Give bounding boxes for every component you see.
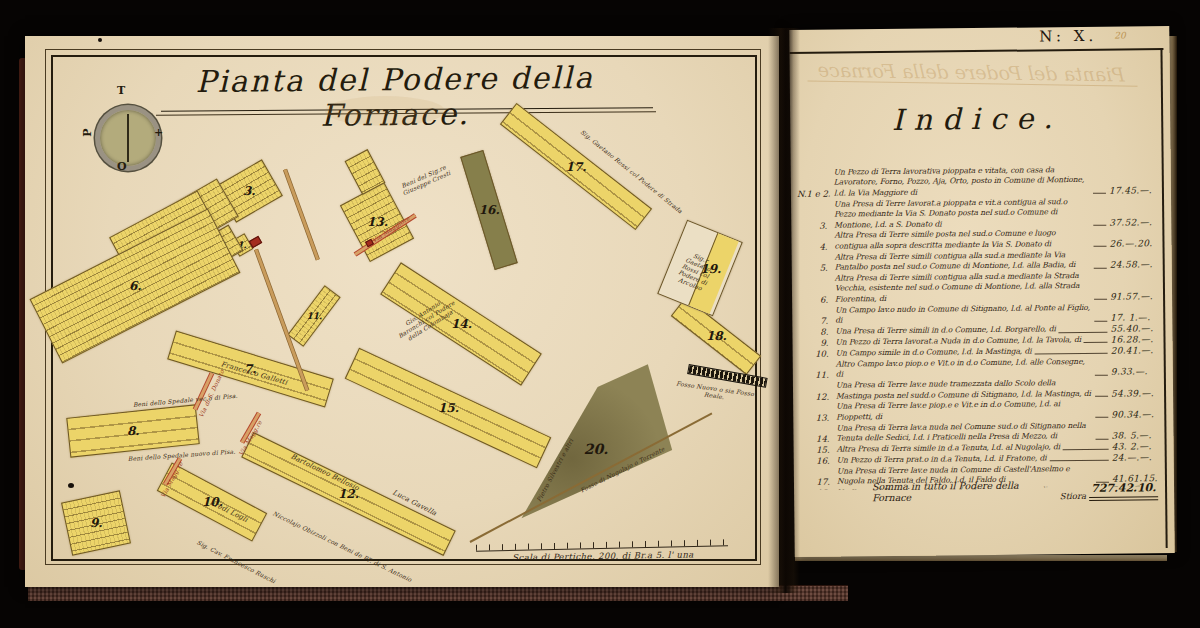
entry-leader-line bbox=[1094, 320, 1107, 321]
entry-value: 24.58.—. bbox=[1110, 259, 1162, 270]
entry-number: 7. bbox=[798, 316, 835, 327]
compass-needle-icon bbox=[127, 114, 129, 162]
compass-east-label: + bbox=[154, 126, 163, 139]
parcel-number: 18. bbox=[706, 330, 727, 342]
index-entry: 6.Altra Presa di Terre simili contigua a… bbox=[798, 270, 1162, 305]
parcel-number: 16. bbox=[479, 204, 500, 216]
wormhole-dot bbox=[98, 38, 102, 42]
compass-rose bbox=[95, 105, 161, 171]
parcel-number: 14. bbox=[451, 318, 472, 330]
parcel-number: 3. bbox=[243, 185, 256, 197]
entry-leader-line bbox=[1063, 449, 1109, 450]
entry-number: N.1 e 2. bbox=[797, 188, 834, 199]
compass-west-label: P bbox=[81, 128, 94, 136]
entry-text: Una Presa di Terre lavorat.a pioppata e … bbox=[834, 197, 1090, 231]
entry-leader-line bbox=[1059, 331, 1108, 333]
entry-leader-line bbox=[1093, 193, 1106, 194]
parcel-number: 6. bbox=[129, 280, 142, 292]
entry-leader-line bbox=[1095, 417, 1108, 418]
parcel-number: 9. bbox=[90, 517, 103, 529]
entry-number: 13. bbox=[799, 412, 836, 423]
plate-number-label: N: X. bbox=[1039, 27, 1097, 46]
parcel-number: 15. bbox=[438, 402, 459, 414]
entry-number: 9. bbox=[798, 338, 835, 349]
entry-value: 26.—.20. bbox=[1109, 238, 1161, 249]
entry-number: 15. bbox=[800, 445, 837, 456]
entry-value: 43. 2.—. bbox=[1112, 441, 1164, 452]
total-value: 727.42.10. bbox=[1089, 481, 1158, 501]
entry-leader-line bbox=[1095, 374, 1108, 375]
entry-number: 11. bbox=[799, 370, 836, 381]
entry-value: 24.—.—. bbox=[1112, 452, 1164, 463]
entry-leader-line bbox=[1096, 438, 1109, 439]
entry-text: Una Presa di Terra lav.a nuda nel Comune… bbox=[836, 421, 1092, 444]
entry-number: 8. bbox=[798, 327, 835, 338]
parcel-number: 17. bbox=[566, 160, 587, 172]
entry-leader-line bbox=[1050, 460, 1109, 462]
entry-value: 54.39.—. bbox=[1111, 388, 1163, 399]
entry-text: Altra Presa di Terre simile posta nel su… bbox=[834, 228, 1090, 251]
parcel-number: 20. bbox=[584, 442, 608, 456]
wormhole-dot bbox=[68, 483, 74, 488]
entry-leader-line bbox=[1094, 299, 1107, 300]
parcel-number: 11. bbox=[306, 312, 322, 321]
entry-value: 17.45.—. bbox=[1109, 185, 1161, 196]
index-entry: N.1 e 2.Un Pezzo di Terra lavorativa pio… bbox=[797, 164, 1161, 199]
entry-text: Altra Presa di Terre simili contigua all… bbox=[835, 271, 1091, 305]
entry-value: 55.40.—. bbox=[1110, 323, 1162, 334]
entry-number: 6. bbox=[798, 294, 835, 305]
book-spread: Pianta del Podere della Fornace. T O P +… bbox=[0, 0, 1200, 628]
index-heading: Indice. bbox=[790, 100, 1164, 138]
entry-leader-line bbox=[1094, 246, 1107, 247]
index-entry: 3.Una Presa di Terre lavorat.a pioppata … bbox=[797, 196, 1161, 231]
entry-leader-line bbox=[1093, 225, 1106, 226]
entry-text: Un Pezzo di Terra lavorativa pioppata e … bbox=[834, 165, 1090, 199]
parcel-number: 8. bbox=[127, 425, 140, 437]
entry-number: 12. bbox=[799, 391, 836, 402]
folio-number: 20 bbox=[1114, 30, 1126, 40]
book-gutter bbox=[768, 28, 800, 593]
index-entries: N.1 e 2.Un Pezzo di Terra lavorativa pio… bbox=[797, 164, 1164, 490]
entry-text: Un Campo lav.o nudo in Comune di Sitigna… bbox=[835, 303, 1091, 326]
bleedthrough-text: Pianta del Podere della Fornace bbox=[808, 59, 1138, 87]
compass-north-label: T bbox=[117, 84, 125, 97]
entry-number: 5. bbox=[798, 263, 835, 274]
entry-value: 16.28.—. bbox=[1110, 334, 1162, 345]
compass-south-label: O bbox=[117, 160, 127, 173]
entry-text: Una Presa di Terre lav.e nude tramezzata… bbox=[836, 378, 1092, 401]
entry-value: 38. 5.—. bbox=[1111, 430, 1163, 441]
total-label: Somma in tutto il Podere della Fornace bbox=[872, 479, 1052, 503]
index-page: N: X. 20 Pianta del Podere della Fornace… bbox=[789, 26, 1174, 557]
entry-text: Una Presa di Terre lav.e piop.e e Vit.e … bbox=[836, 399, 1092, 422]
entry-value: 20.41.—. bbox=[1111, 345, 1163, 356]
entry-leader-line bbox=[1095, 396, 1108, 397]
entry-text: Altra Presa di Terre simili contigua all… bbox=[835, 250, 1091, 273]
entry-value: 90.34.—. bbox=[1111, 409, 1163, 420]
entry-leader-line bbox=[1084, 342, 1108, 343]
entry-number: 16. bbox=[800, 456, 837, 467]
entry-number: 14. bbox=[799, 434, 836, 445]
entry-leader-line bbox=[1035, 353, 1108, 355]
entry-value: 91.57.—. bbox=[1110, 291, 1162, 302]
map-page: Pianta del Podere della Fornace. T O P +… bbox=[25, 36, 779, 587]
total-row: Somma in tutto il Podere della Fornace S… bbox=[806, 478, 1158, 504]
map-title: Pianta del Podere della Fornace. bbox=[135, 59, 656, 134]
entry-number: 3. bbox=[797, 220, 834, 231]
entry-text: Altro Campo lav.o piop.o e Vit.o in d.o … bbox=[836, 357, 1092, 380]
entry-number: 4. bbox=[797, 241, 834, 252]
entry-number: 10. bbox=[799, 348, 836, 359]
parcel-number: 13. bbox=[367, 216, 388, 228]
entry-value: 37.52.—. bbox=[1109, 217, 1161, 228]
entry-value: 17. 1.—. bbox=[1110, 312, 1162, 323]
entry-leader-line bbox=[1094, 267, 1107, 268]
book-cover-bottom-edge bbox=[28, 585, 848, 601]
entry-value: 9.33.—. bbox=[1111, 366, 1163, 377]
index-frame-top bbox=[789, 48, 1163, 54]
total-unit: Stiora bbox=[1060, 491, 1086, 501]
